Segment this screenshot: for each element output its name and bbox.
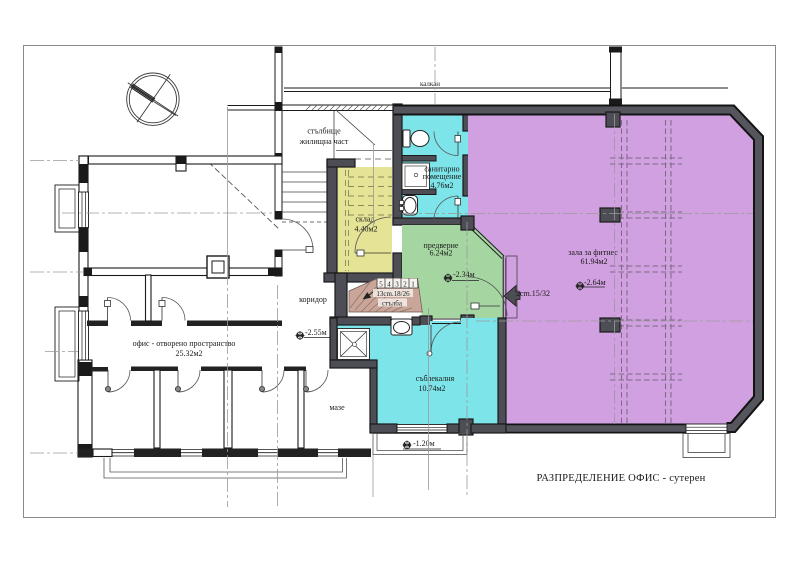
svg-text:2: 2 (403, 281, 407, 289)
svg-text:стълбище: стълбище (307, 127, 341, 136)
svg-text:помещение: помещение (423, 172, 462, 181)
svg-text:съблекалня: съблекалня (416, 374, 455, 383)
svg-text:стълба: стълба (382, 300, 403, 308)
svg-text:4.40м2: 4.40м2 (354, 225, 377, 234)
svg-text:10.74м2: 10.74м2 (418, 384, 445, 393)
svg-text:61.94м2: 61.94м2 (580, 257, 607, 266)
svg-text:4.76м2: 4.76м2 (430, 181, 453, 190)
svg-text:6.24м2: 6.24м2 (429, 249, 452, 258)
svg-text:офис - отворено пространство: офис - отворено пространство (133, 339, 236, 348)
svg-text:13cm.18/26: 13cm.18/26 (376, 290, 410, 298)
svg-text:коридор: коридор (299, 295, 327, 304)
svg-text:-2.55м: -2.55м (305, 328, 327, 337)
svg-text:1: 1 (411, 281, 415, 289)
svg-text:-1.20м: -1.20м (413, 439, 435, 448)
svg-text:-2.34м: -2.34м (453, 270, 475, 279)
svg-text:калкан: калкан (420, 80, 440, 88)
svg-text:РАЗПРЕДЕЛЕНИЕ ОФИС - сутерен: РАЗПРЕДЕЛЕНИЕ ОФИС - сутерен (536, 473, 705, 484)
svg-text:жилищна част: жилищна част (299, 137, 349, 146)
svg-text:4: 4 (387, 281, 391, 289)
svg-text:25.32м2: 25.32м2 (175, 349, 202, 358)
svg-text:мазе: мазе (329, 403, 345, 412)
svg-text:зала за фитнес: зала за фитнес (568, 248, 618, 257)
svg-text:5: 5 (379, 281, 383, 289)
svg-text:-2.64м: -2.64м (584, 278, 606, 287)
svg-text:3: 3 (395, 281, 399, 289)
svg-text:2cm.15/32: 2cm.15/32 (516, 289, 550, 298)
